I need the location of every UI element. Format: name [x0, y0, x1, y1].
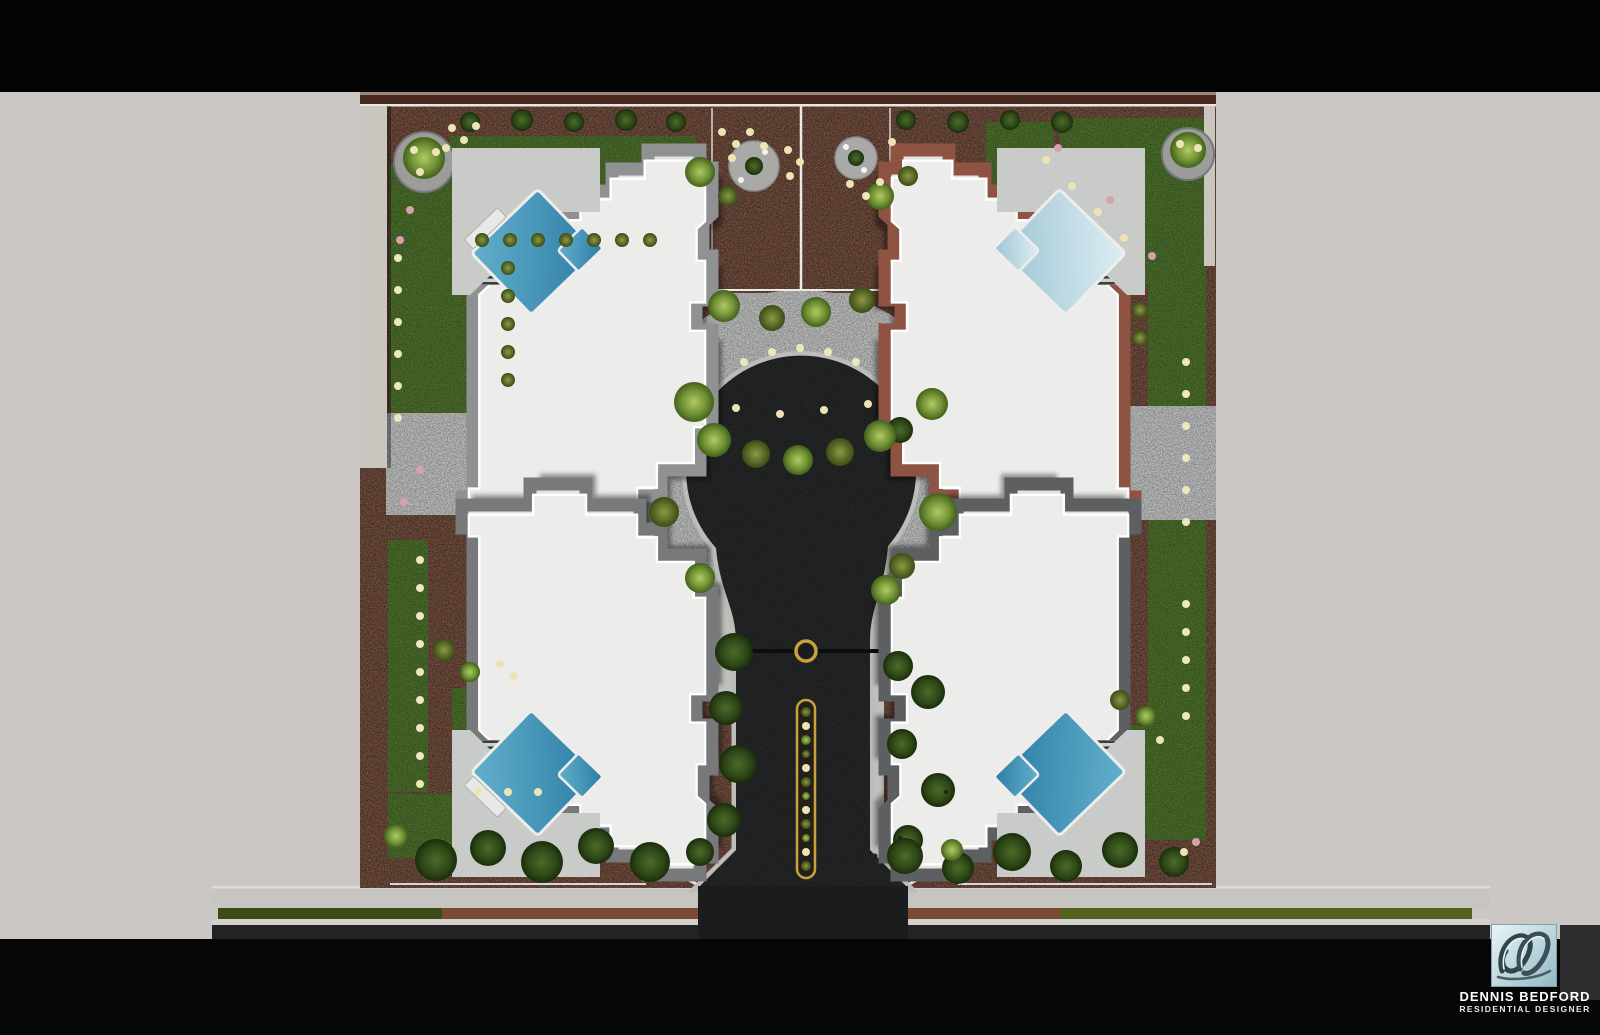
- gate-gold-ring: [796, 641, 816, 661]
- designer-name: DENNIS BEDFORD: [1440, 990, 1600, 1004]
- drive-apron: [698, 886, 908, 939]
- site-plan-rendering: DENNIS BEDFORD RESIDENTIAL DESIGNER: [0, 0, 1600, 1035]
- site-plan-scene: [0, 0, 1600, 1035]
- designer-logo: [1491, 924, 1557, 987]
- db-script-monogram-icon: [1492, 925, 1556, 986]
- site-plan: [360, 92, 1216, 939]
- top-black-band: [0, 0, 1600, 92]
- designer-credit: DENNIS BEDFORD RESIDENTIAL DESIGNER: [1440, 990, 1600, 1015]
- designer-role: RESIDENTIAL DESIGNER: [1440, 1004, 1600, 1015]
